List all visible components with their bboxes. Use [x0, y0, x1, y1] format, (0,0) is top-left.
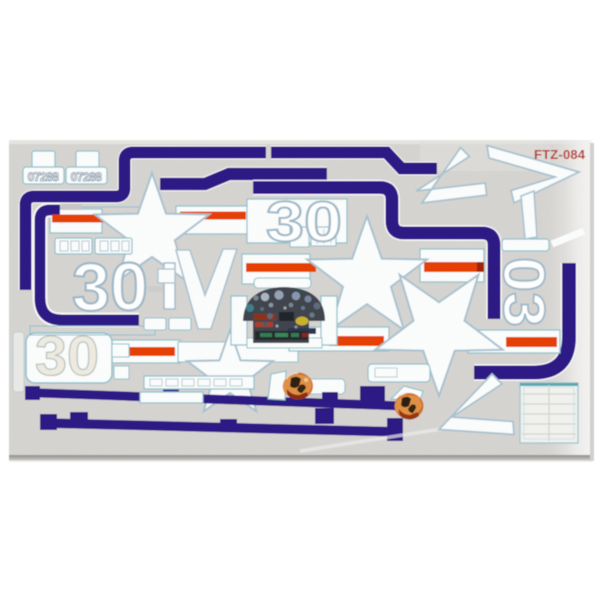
svg-text:30: 30: [266, 190, 342, 254]
svg-text:30: 30: [72, 249, 148, 325]
svg-text:07288: 07288: [71, 170, 103, 184]
svg-text:07288: 07288: [28, 170, 60, 184]
svg-text:03: 03: [491, 257, 556, 327]
svg-text:30: 30: [35, 324, 99, 387]
svg-text:FTZ-084: FTZ-084: [534, 147, 586, 162]
